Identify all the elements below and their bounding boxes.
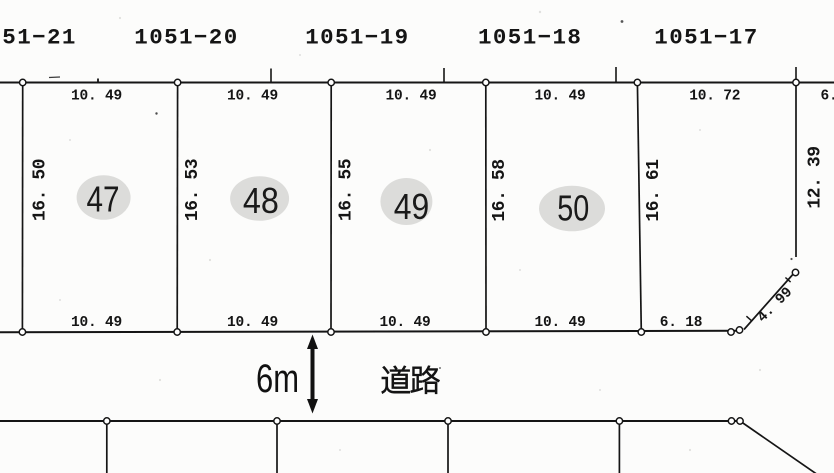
svg-text:50: 50 [557,188,589,229]
svg-text:6.: 6. [821,88,834,104]
svg-text:1051−21: 1051−21 [0,25,77,51]
svg-text:12. 39: 12. 39 [806,146,826,208]
svg-text:49: 49 [394,186,430,227]
svg-text:48: 48 [243,180,279,221]
svg-text:10. 49: 10. 49 [379,315,430,331]
svg-text:1051−17: 1051−17 [654,25,758,51]
svg-text:10. 49: 10. 49 [71,315,122,331]
svg-text:10. 49: 10. 49 [534,88,585,104]
svg-text:10. 49: 10. 49 [385,88,436,104]
svg-text:6. 18: 6. 18 [660,315,703,331]
svg-text:16. 58: 16. 58 [490,159,510,221]
svg-text:16. 53: 16. 53 [183,159,203,221]
svg-text:1051−20: 1051−20 [134,25,238,51]
svg-text:10. 49: 10. 49 [227,88,278,104]
svg-text:10. 49: 10. 49 [534,315,585,331]
svg-text:16. 61: 16. 61 [644,159,664,222]
svg-text:16. 50: 16. 50 [30,159,50,221]
svg-text:10. 49: 10. 49 [227,315,278,331]
svg-text:6m: 6m [256,357,299,401]
svg-text:16. 55: 16. 55 [337,159,357,221]
svg-text:1051−19: 1051−19 [305,25,409,51]
svg-text:1051−18: 1051−18 [478,25,582,51]
svg-text:47: 47 [87,179,120,220]
svg-text:10. 72: 10. 72 [689,88,740,104]
svg-text:10. 49: 10. 49 [71,88,122,104]
